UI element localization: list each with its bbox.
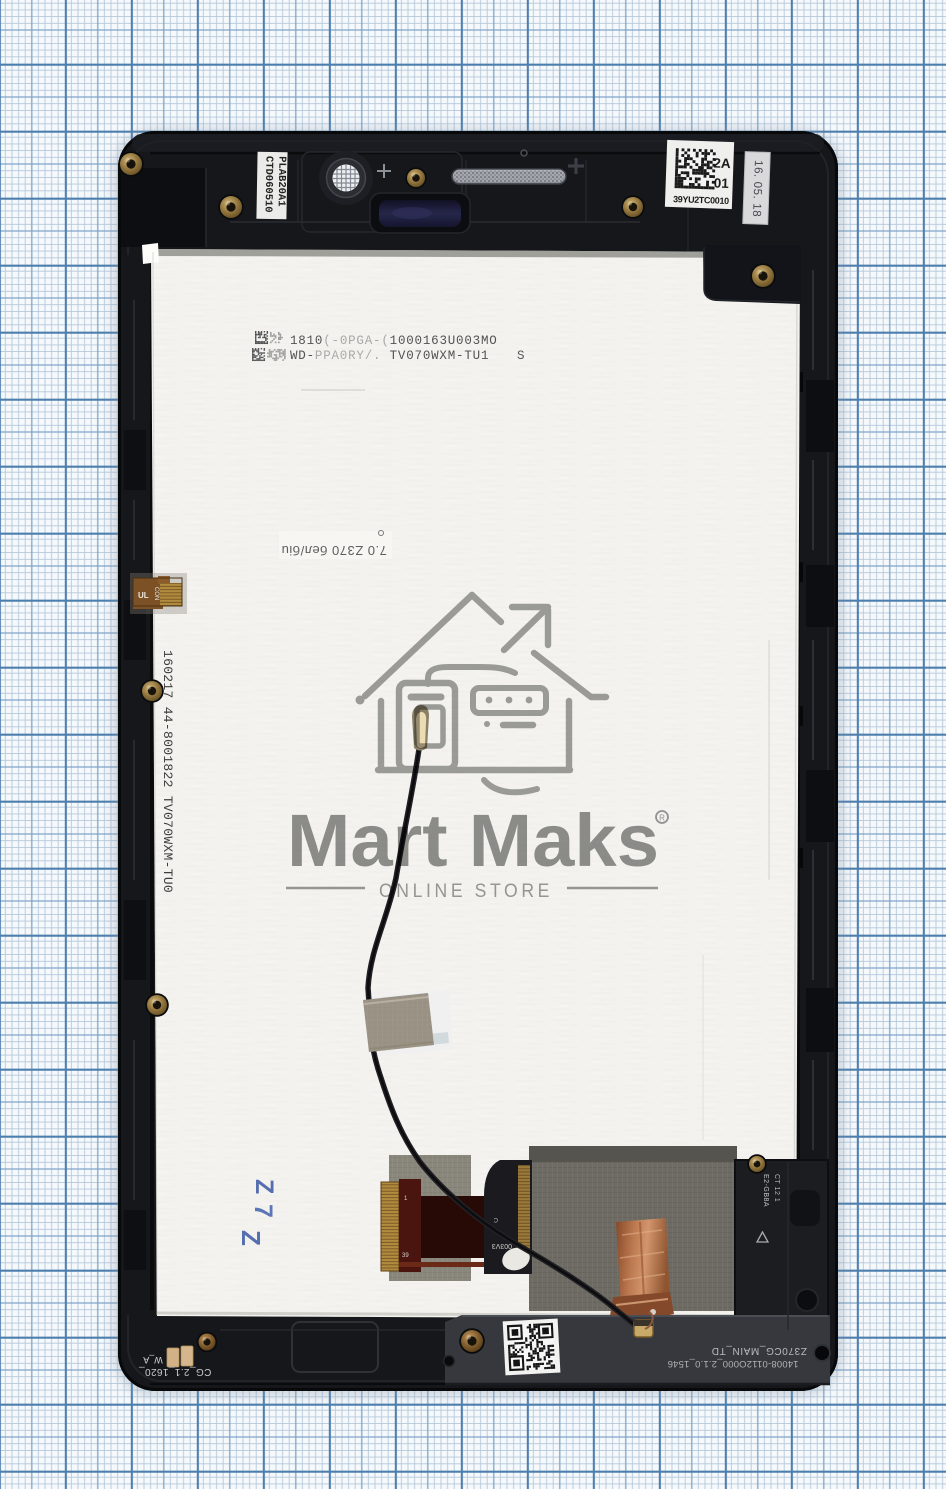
svg-text:39YU2TC0010: 39YU2TC0010	[673, 194, 729, 206]
svg-text:Mart Maks: Mart Maks	[287, 799, 659, 882]
svg-text:39: 39	[402, 1253, 409, 1259]
svg-text:PLAB20A1: PLAB20A1	[275, 156, 288, 207]
svg-text:Z: Z	[250, 1179, 278, 1194]
svg-text:UL: UL	[138, 591, 149, 600]
svg-text:003V3: 003V3	[492, 1242, 512, 1249]
svg-text:S: S	[517, 349, 525, 363]
svg-text:C: C	[493, 1216, 498, 1222]
svg-text:2A: 2A	[713, 155, 731, 171]
svg-text:16. 05. 18: 16. 05. 18	[750, 160, 764, 218]
svg-text:CG_2.1_1620_: CG_2.1_1620_	[139, 1366, 212, 1377]
svg-text:WD-PPA0RY/. TV070WXM-TU1: WD-PPA0RY/. TV070WXM-TU1	[290, 349, 489, 363]
svg-text:14008-0112O000_2.1.0_1546: 14008-0112O000_2.1.0_1546	[667, 1358, 798, 1369]
svg-text:ONLINE STORE: ONLINE STORE	[379, 880, 553, 902]
svg-text:Z370CG_MAIN_TD: Z370CG_MAIN_TD	[711, 1345, 807, 1356]
svg-text:CTD060510: CTD060510	[262, 156, 275, 213]
svg-text:W_A: W_A	[143, 1355, 163, 1365]
svg-text:R: R	[659, 814, 665, 823]
svg-text:Z: Z	[236, 1230, 266, 1246]
svg-text:7: 7	[249, 1204, 277, 1218]
svg-text:CT 12 1: CT 12 1	[773, 1174, 780, 1202]
svg-text:01: 01	[713, 175, 729, 191]
svg-text:1810(-0PGA-(1000163U003MO: 1810(-0PGA-(1000163U003MO	[290, 334, 498, 348]
svg-text:E2-GB8A: E2-GB8A	[762, 1174, 769, 1207]
svg-text:CON: CON	[153, 587, 159, 600]
svg-text:7.0 Z370 бел/бiu: 7.0 Z370 бел/бiu	[281, 543, 387, 558]
